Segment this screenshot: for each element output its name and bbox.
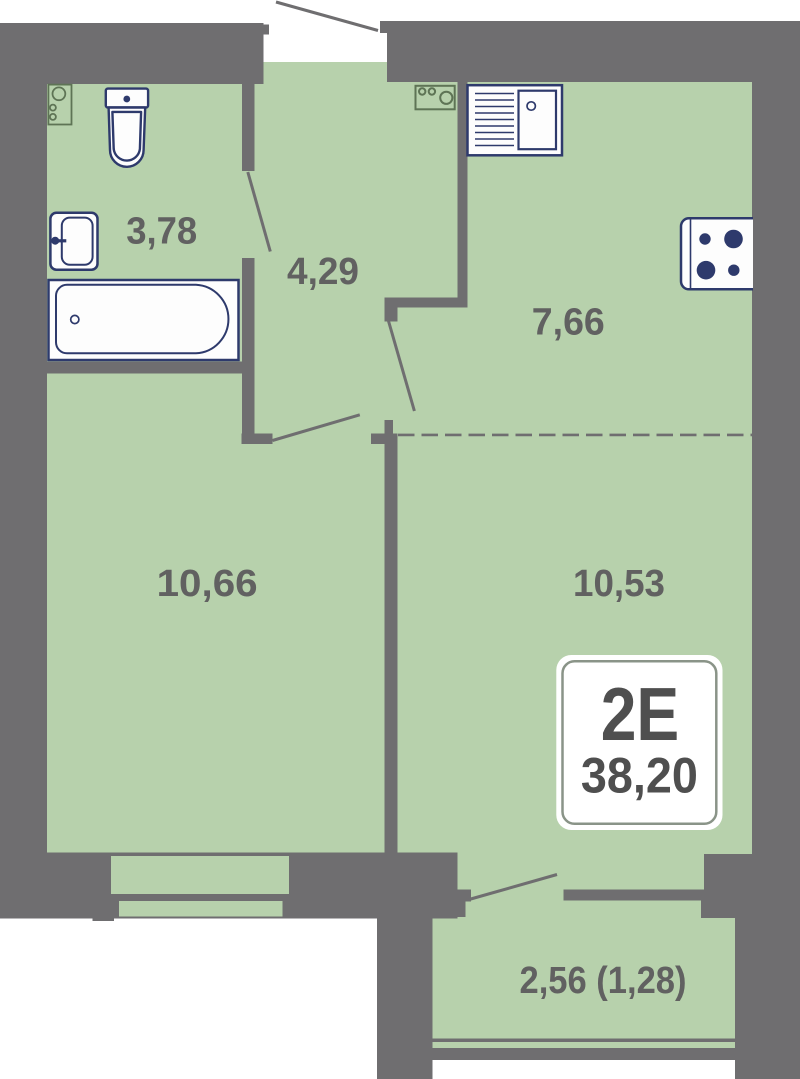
svg-text:2Е: 2Е: [601, 672, 680, 756]
svg-text:7,66: 7,66: [532, 302, 605, 344]
svg-text:38,20: 38,20: [581, 748, 698, 804]
svg-text:10,66: 10,66: [157, 563, 258, 605]
svg-text:2,56 (1,28): 2,56 (1,28): [520, 960, 687, 1002]
svg-text:4,29: 4,29: [287, 251, 359, 293]
svg-text:3,78: 3,78: [126, 211, 197, 253]
svg-text:10,53: 10,53: [573, 563, 665, 605]
